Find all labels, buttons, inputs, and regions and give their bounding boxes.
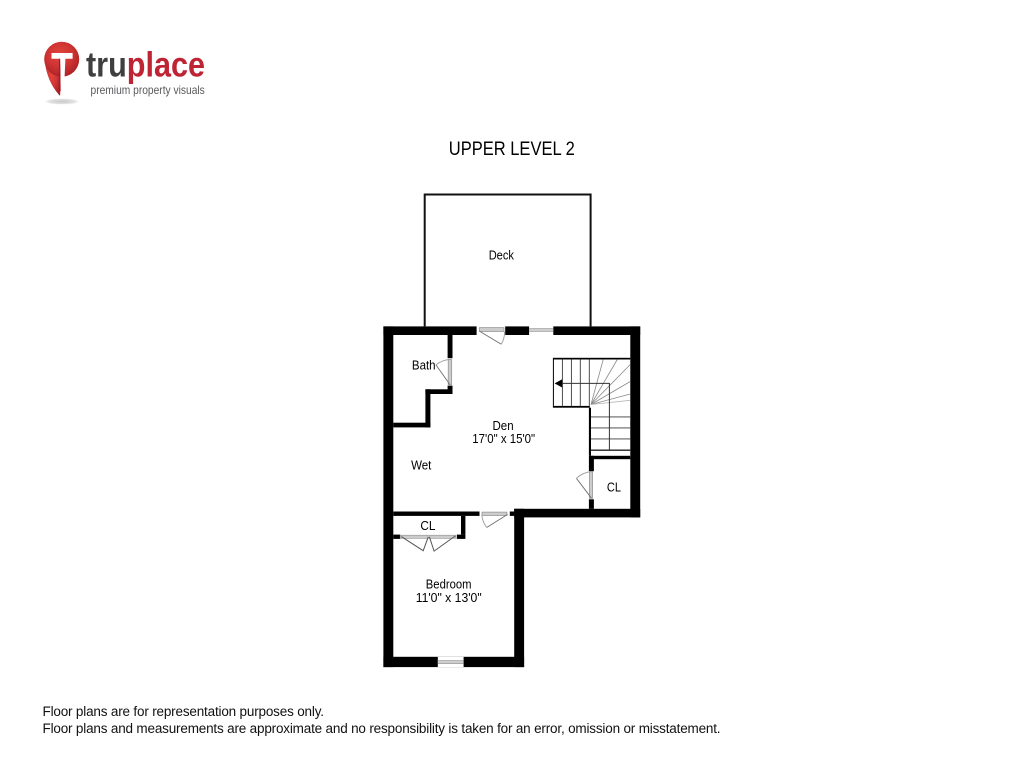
svg-text:Bath: Bath [412,358,436,373]
svg-text:CL: CL [607,480,621,495]
svg-text:17'0" x 15'0": 17'0" x 15'0" [472,432,535,446]
svg-text:Den: Den [493,418,514,433]
svg-text:11'0" x 13'0": 11'0" x 13'0" [416,591,482,605]
svg-text:CL: CL [420,518,435,533]
svg-text:Wet: Wet [411,457,432,472]
svg-text:Deck: Deck [489,248,515,263]
svg-text:Bedroom: Bedroom [426,577,472,592]
